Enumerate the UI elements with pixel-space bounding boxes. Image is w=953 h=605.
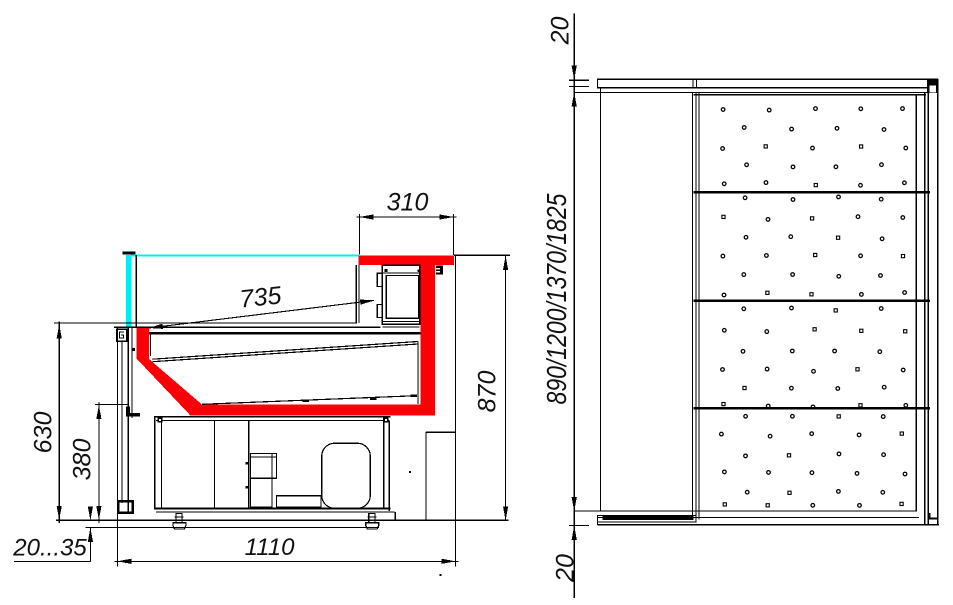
svg-text:20: 20 — [552, 554, 580, 583]
svg-text:630: 630 — [30, 412, 58, 454]
svg-text:20...35: 20...35 — [12, 535, 87, 562]
svg-text:1110: 1110 — [245, 534, 295, 561]
svg-text:20: 20 — [547, 17, 575, 46]
svg-text:380: 380 — [69, 439, 97, 481]
svg-text:310: 310 — [387, 189, 429, 217]
svg-text:870: 870 — [474, 371, 502, 413]
svg-text:890/1200/1370/1825: 890/1200/1370/1825 — [542, 193, 572, 405]
svg-text:735: 735 — [238, 281, 283, 313]
